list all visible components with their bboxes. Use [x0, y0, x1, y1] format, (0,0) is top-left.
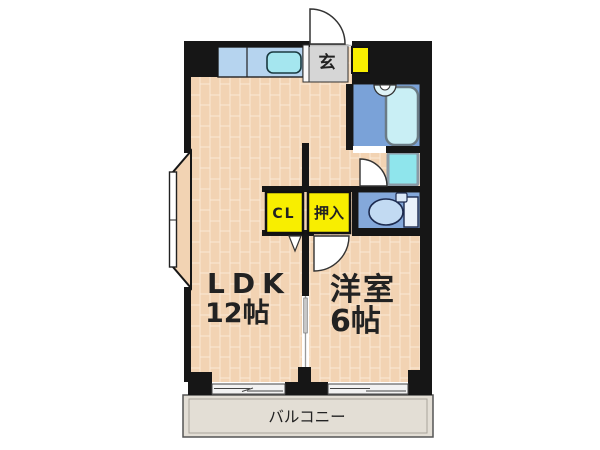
wall-left-upper: [184, 41, 191, 153]
wall-partition-foot: [298, 367, 311, 395]
wall-right: [420, 41, 432, 395]
shoe-cabinet: [352, 47, 369, 73]
wall-bottom-left: [191, 382, 212, 395]
wall-under-bathtub: [386, 146, 420, 153]
balcony-label: バルコニー: [268, 408, 345, 426]
bathroom-door-threshold: [353, 146, 386, 153]
ldk-size-label: 12帖: [205, 298, 270, 329]
toilet-bowl: [369, 199, 403, 225]
wall-kitchen-entrance: [303, 45, 309, 82]
toilet-cistern-button: [396, 193, 407, 202]
closet-label: CL: [272, 206, 295, 222]
entrance-label: 玄: [319, 52, 336, 73]
sliding-door-panel: [304, 298, 308, 333]
entrance-door-swing: [310, 9, 345, 44]
oshiire-label: 押入: [314, 204, 344, 222]
bathtub: [386, 87, 418, 145]
wall-toilet-bottom: [352, 228, 432, 236]
wall-ldk-western-upper: [302, 236, 309, 296]
wall-hall-partition: [302, 143, 309, 192]
floor-plan-page: バルコニー 玄: [0, 0, 600, 450]
ldk-label: LDK: [207, 267, 291, 300]
western-room-label: 洋室: [330, 272, 396, 308]
wall-bath-left: [346, 84, 353, 150]
kitchen-sink: [267, 52, 301, 73]
wall-bottom-right-corner: [408, 370, 432, 395]
wall-left-lower: [184, 287, 191, 382]
western-room-size-label: 6帖: [330, 304, 381, 339]
laundry-pan: [388, 153, 418, 185]
floor-plan-drawing: バルコニー 玄: [0, 0, 600, 450]
